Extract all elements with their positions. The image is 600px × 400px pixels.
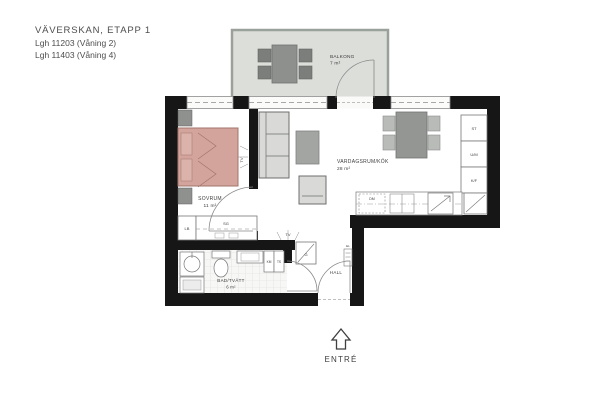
laundry-bench bbox=[180, 277, 204, 293]
bedroom-area: 11 m² bbox=[204, 203, 217, 209]
balcony-area: 7 m² bbox=[330, 61, 341, 67]
floor-plan-drawing: VÄVERSKAN, ETAPP 1 Lgh 11203 (Våning 2) … bbox=[0, 0, 600, 400]
apartment-number-2: Lgh 11403 (Våning 4) bbox=[35, 50, 116, 60]
fridge-freezer-label: K/F bbox=[471, 178, 478, 183]
bathroom-door bbox=[287, 261, 317, 291]
bath-area: 6 m² bbox=[226, 285, 236, 290]
dining-chair bbox=[383, 116, 395, 131]
balcony-doorway bbox=[337, 97, 373, 109]
nightstand bbox=[178, 188, 192, 204]
title-block: VÄVERSKAN, ETAPP 1 Lgh 11203 (Våning 2) … bbox=[35, 25, 151, 60]
balcony: BALKONG 7 m² bbox=[232, 30, 388, 102]
entrance-label: ENTRÉ bbox=[324, 355, 357, 364]
cleaning-cabinet-label: ST bbox=[471, 126, 477, 131]
wall-top bbox=[373, 96, 391, 109]
wall-hall-right bbox=[352, 215, 364, 306]
apartment-number-1: Lgh 11203 (Våning 2) bbox=[35, 38, 116, 48]
pillow bbox=[181, 159, 192, 181]
entry-door bbox=[318, 261, 350, 300]
windows bbox=[187, 97, 450, 109]
hall-wardrobe: G bbox=[296, 242, 316, 264]
wall-bottom bbox=[165, 293, 318, 306]
balcony-chair bbox=[258, 49, 271, 62]
drying-cabinet-label: TS bbox=[277, 260, 281, 264]
window-kitchen bbox=[391, 97, 450, 109]
stove bbox=[428, 193, 453, 214]
wall-kitchen-bottom bbox=[350, 215, 500, 228]
wall-right bbox=[487, 96, 500, 228]
wall-bathroom-top bbox=[165, 240, 295, 250]
wall-left bbox=[165, 96, 178, 306]
floor-plan-page: VÄVERSKAN, ETAPP 1 Lgh 11203 (Våning 2) … bbox=[0, 0, 600, 400]
hall: G EL HALL bbox=[296, 242, 352, 275]
washing-machine-label: KM bbox=[267, 260, 272, 264]
kitchen-counter: DM bbox=[356, 192, 462, 215]
dining-chair bbox=[428, 116, 440, 131]
oven-microwave-label: U/M bbox=[470, 152, 477, 157]
bedroom: SOVRUM 11 m² TV LB SG bbox=[178, 110, 257, 240]
sliding-wardrobe bbox=[196, 216, 257, 240]
wall-bedroom-divider bbox=[249, 109, 258, 189]
armchair bbox=[299, 176, 326, 204]
shower-washbasin-unit bbox=[180, 252, 204, 276]
hall-wardrobe-label: G bbox=[304, 252, 307, 257]
washbasin bbox=[237, 251, 263, 263]
sofa bbox=[259, 112, 289, 178]
window-living bbox=[249, 97, 327, 109]
entrance-marker: ENTRÉ bbox=[324, 329, 357, 364]
dishwasher-label: DM bbox=[369, 197, 375, 201]
balcony-chair bbox=[299, 66, 312, 79]
tv-living-icon bbox=[277, 230, 299, 240]
living-label: VARDAGSRUM/KÖK bbox=[337, 158, 389, 165]
electrical-cabinet: EL bbox=[344, 244, 352, 266]
linen-cabinet-label: LB bbox=[185, 226, 190, 231]
wall-top bbox=[327, 96, 337, 109]
sliding-wardrobe-label: SG bbox=[223, 221, 229, 226]
hall-label: HALL bbox=[330, 270, 343, 275]
dining-table bbox=[396, 112, 427, 158]
bedroom-label: SOVRUM bbox=[198, 196, 222, 202]
living-area: 28 m² bbox=[337, 166, 350, 172]
wall-top bbox=[165, 96, 187, 109]
wall-bottom bbox=[350, 293, 364, 306]
electrical-label: EL bbox=[346, 244, 350, 248]
balcony-table bbox=[272, 45, 297, 83]
dining-chair bbox=[428, 135, 440, 150]
tv-bedroom-icon bbox=[238, 146, 248, 168]
project-title: VÄVERSKAN, ETAPP 1 bbox=[35, 25, 151, 36]
balcony-chair bbox=[299, 49, 312, 62]
balcony-label: BALKONG bbox=[330, 54, 355, 60]
corner-cabinet bbox=[464, 193, 487, 214]
wall-top bbox=[233, 96, 249, 109]
balcony-chair bbox=[258, 66, 271, 79]
dining-chair bbox=[383, 135, 395, 150]
window-bedroom bbox=[187, 97, 233, 109]
nightstand bbox=[178, 110, 192, 126]
bath-label: BAD/TVÄTT bbox=[217, 277, 244, 283]
entrance-arrow-icon bbox=[332, 329, 350, 349]
tv-bedroom-label: TV bbox=[239, 157, 244, 162]
pillow bbox=[181, 133, 192, 155]
coffee-table bbox=[296, 131, 319, 164]
